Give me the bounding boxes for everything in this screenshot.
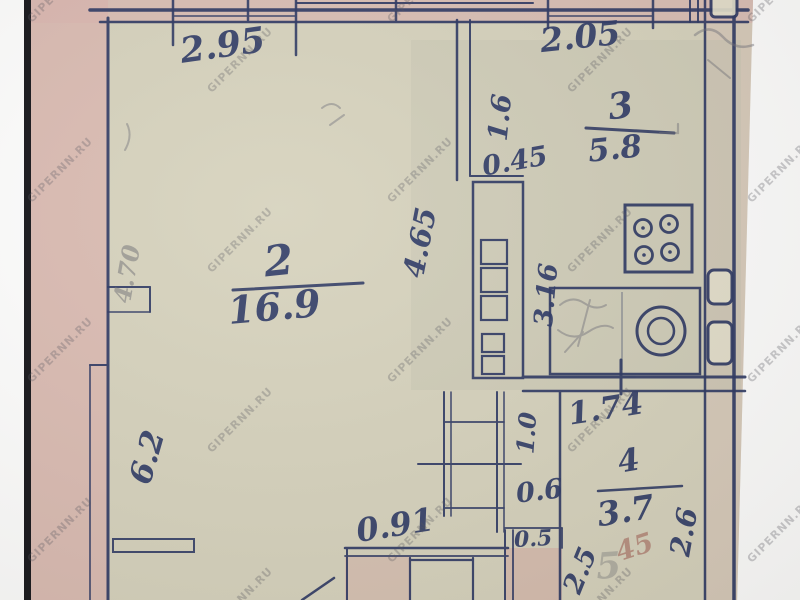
dim-closet-length: 1.0 [513,411,540,454]
pencil-hall-big-note: 5 [595,547,623,585]
gas-stove-icon [625,205,692,272]
room-hall-area: 3.7 [595,490,657,532]
room-kitchen-area: 5.8 [587,131,644,167]
room-kitchen-number: 3 [606,86,636,125]
vent-hatch-squares [481,240,507,374]
room-living-area: 16.9 [227,284,323,330]
floor-plan-photo: 2.95 2.05 2 16.9 3 5.8 4 3.7 1.6 0.45 3.… [0,0,800,600]
dim-hall-depth: 2.6 [666,506,702,559]
radiator-icon [113,539,194,552]
room-living-number: 2 [262,239,295,284]
dim-kitchen-left: 1.6 [485,93,517,143]
kitchen-sink-icon [550,288,700,374]
dim-hall-width: 0.6 [515,475,565,508]
dim-top-right: 2.05 [538,16,621,57]
dim-kitchen-depth: 3.16 [531,262,562,327]
dim-small-width: 0.5 [513,527,552,551]
pencil-scribbles [125,29,753,352]
dim-top-left: 2.95 [178,22,267,69]
